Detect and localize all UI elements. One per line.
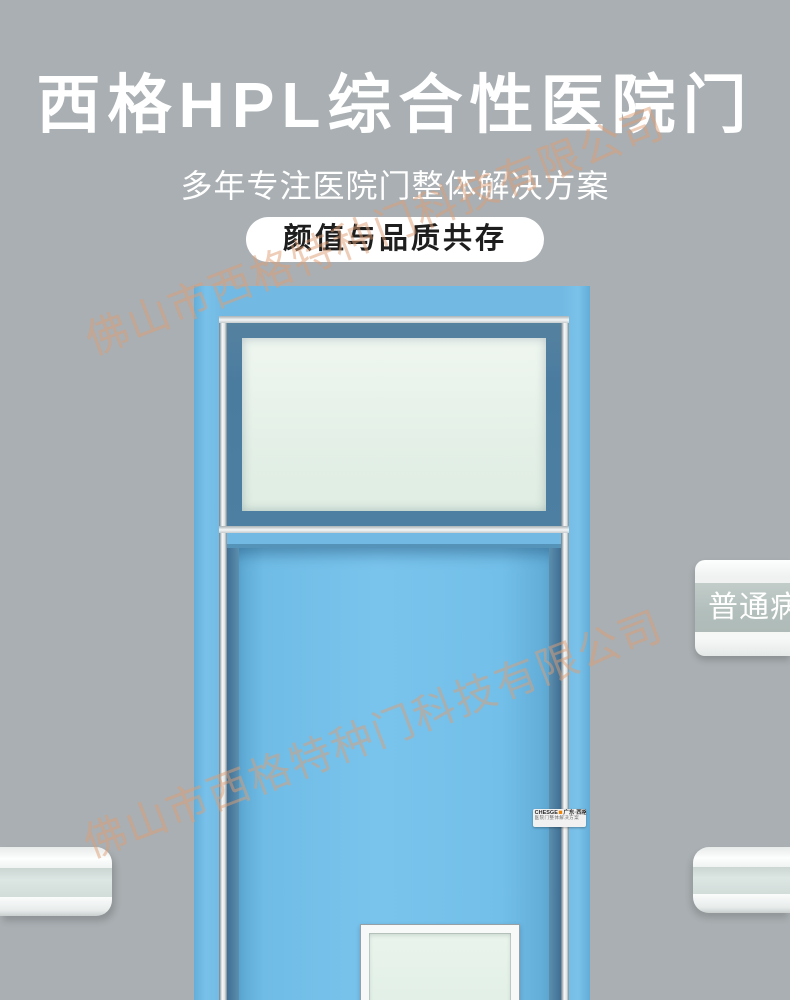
handrail-band bbox=[693, 867, 790, 894]
wall-handrail-left bbox=[0, 847, 112, 916]
handrail-top-face bbox=[0, 847, 112, 868]
door-trim-right bbox=[561, 316, 569, 1000]
transom-glass bbox=[242, 338, 546, 511]
transom-trim-bottom bbox=[219, 526, 569, 533]
handrail-bottom-face bbox=[0, 897, 112, 916]
wall-handrail-right bbox=[693, 847, 790, 913]
door-reveal-right bbox=[549, 548, 561, 1000]
handrail-top-face bbox=[693, 847, 790, 867]
logo-mark-icon bbox=[559, 811, 562, 814]
handrail-bottom-face bbox=[693, 894, 790, 913]
room-sign-band: 普通病房 bbox=[695, 583, 790, 632]
brand-logo-plate: CHESGE广东·西格 医院门整体解决方案 bbox=[533, 809, 586, 827]
transom-trim-top bbox=[219, 316, 569, 323]
hospital-door: CHESGE广东·西格 医院门整体解决方案 bbox=[194, 286, 590, 1000]
door-trim-left bbox=[219, 316, 227, 1000]
room-sign: 普通病房 bbox=[695, 560, 790, 656]
vision-panel-glass bbox=[369, 933, 511, 1000]
page-title: 西格HPL综合性医院门 bbox=[0, 72, 790, 139]
poster-background: 西格HPL综合性医院门 多年专注医院门整体解决方案 颜值与品质共存 CHESGE… bbox=[0, 0, 790, 1000]
door-reveal-left bbox=[227, 548, 239, 1000]
logo-tagline-text: 医院门整体解决方案 bbox=[535, 816, 586, 821]
door-leaf: CHESGE广东·西格 医院门整体解决方案 bbox=[239, 548, 549, 1000]
page-subtitle: 多年专注医院门整体解决方案 bbox=[0, 161, 790, 207]
transom-window-frame bbox=[227, 323, 561, 526]
quality-badge: 颜值与品质共存 bbox=[246, 217, 544, 262]
vision-panel-frame bbox=[360, 924, 520, 1000]
handrail-band bbox=[0, 868, 112, 897]
room-sign-label: 普通病房 bbox=[708, 583, 790, 632]
